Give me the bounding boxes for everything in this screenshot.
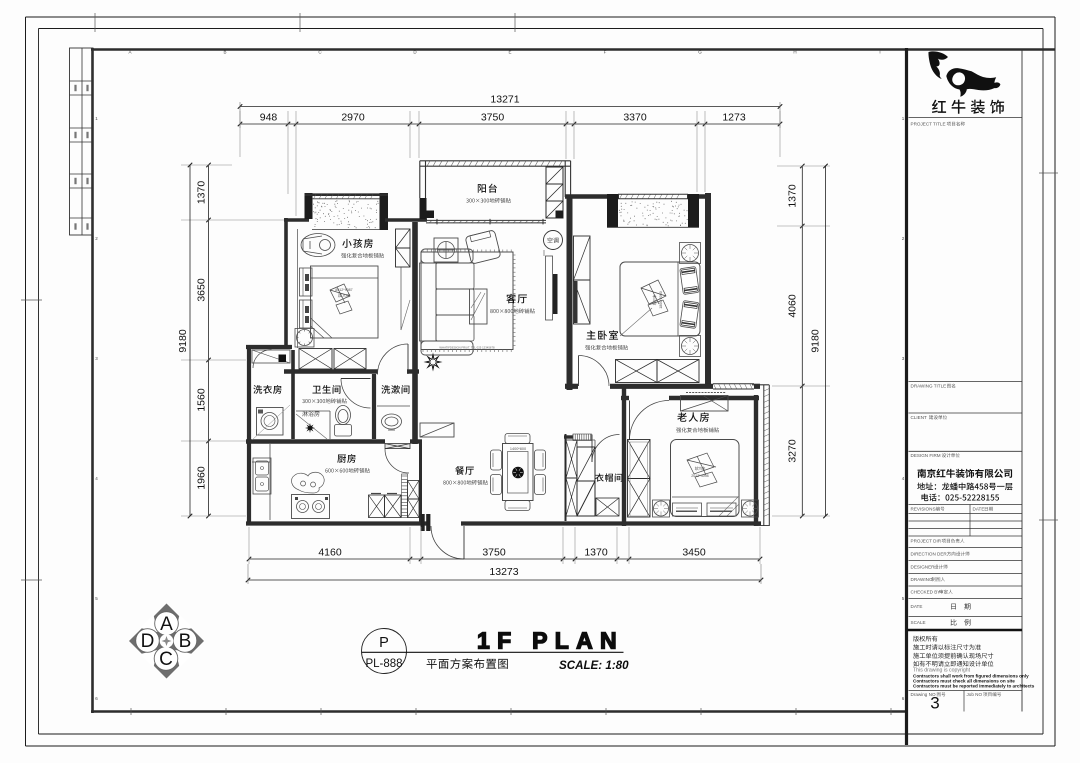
svg-text:SCALE: 1:80: SCALE: 1:80 xyxy=(559,659,629,672)
svg-text:4060: 4060 xyxy=(787,294,799,318)
svg-text:PROJECT DIR: PROJECT DIR xyxy=(911,539,942,544)
svg-text:3750: 3750 xyxy=(481,112,505,124)
svg-text:DATE: DATE xyxy=(973,507,985,512)
svg-text:2970: 2970 xyxy=(341,112,365,124)
svg-text:REVISIONS: REVISIONS xyxy=(911,507,936,512)
svg-text:A: A xyxy=(160,614,173,635)
svg-text:CLIENT: CLIENT xyxy=(911,415,928,420)
svg-text:C: C xyxy=(159,649,173,670)
svg-text:D: D xyxy=(141,631,155,652)
svg-text:8012*9087: 8012*9087 xyxy=(335,288,352,292)
svg-text:H: H xyxy=(793,50,796,55)
svg-text:PROJECT TITLE: PROJECT TITLE xyxy=(911,122,946,127)
svg-text:DESIGN FIRM: DESIGN FIRM xyxy=(911,453,941,458)
svg-text:DRAWING: DRAWING xyxy=(911,577,933,582)
svg-text:P: P xyxy=(379,635,389,651)
svg-text:B: B xyxy=(179,631,192,652)
svg-text:1800*2000: 1800*2000 xyxy=(659,291,663,308)
svg-text:DESIGNER: DESIGNER xyxy=(911,565,936,570)
svg-text:1370: 1370 xyxy=(196,181,208,205)
svg-text:DIRECTION DER: DIRECTION DER xyxy=(911,552,948,557)
svg-text:2012*4098: 2012*4098 xyxy=(691,474,708,478)
svg-text:3450: 3450 xyxy=(682,547,706,559)
svg-text:3: 3 xyxy=(930,694,939,713)
svg-text:3370: 3370 xyxy=(623,112,647,124)
svg-text:E: E xyxy=(508,50,511,55)
svg-text:9180: 9180 xyxy=(810,329,822,353)
svg-text:1370: 1370 xyxy=(787,184,799,208)
svg-text:9180: 9180 xyxy=(177,329,189,353)
svg-text:DRAWING TITLE: DRAWING TITLE xyxy=(911,384,947,389)
svg-text:3750: 3750 xyxy=(482,547,506,559)
svg-text:G: G xyxy=(698,50,702,55)
svg-text:1560: 1560 xyxy=(196,388,208,412)
svg-text:13273: 13273 xyxy=(489,566,518,578)
svg-text:13271: 13271 xyxy=(490,94,519,106)
svg-text:WHATIFDESIGN FRUIT. TEL 025 12: WHATIFDESIGN FRUIT. TEL 025 12345678 xyxy=(439,345,495,349)
svg-text:1F PLAN: 1F PLAN xyxy=(477,628,624,654)
svg-text:A: A xyxy=(128,50,131,55)
svg-text:DATE: DATE xyxy=(911,604,923,609)
svg-text:3270: 3270 xyxy=(787,439,799,463)
svg-text:PL-888: PL-888 xyxy=(365,658,402,670)
svg-text:3650: 3650 xyxy=(196,278,208,302)
svg-text:Job NO: Job NO xyxy=(967,692,983,697)
svg-text:948: 948 xyxy=(260,112,278,124)
svg-text:SCALE: SCALE xyxy=(911,620,926,625)
svg-text:F: F xyxy=(604,50,607,55)
svg-text:1400*800: 1400*800 xyxy=(510,447,526,451)
svg-text:4160: 4160 xyxy=(318,547,342,559)
svg-text:1960: 1960 xyxy=(196,466,208,490)
svg-text:I: I xyxy=(879,50,880,55)
svg-text:1273: 1273 xyxy=(722,112,746,124)
svg-text:Contractors must be reported i: Contractors must be reported immediately… xyxy=(913,684,1035,689)
svg-text:1370: 1370 xyxy=(584,547,608,559)
svg-text:CHECKED BY: CHECKED BY xyxy=(911,590,941,595)
svg-text:B: B xyxy=(223,50,226,55)
